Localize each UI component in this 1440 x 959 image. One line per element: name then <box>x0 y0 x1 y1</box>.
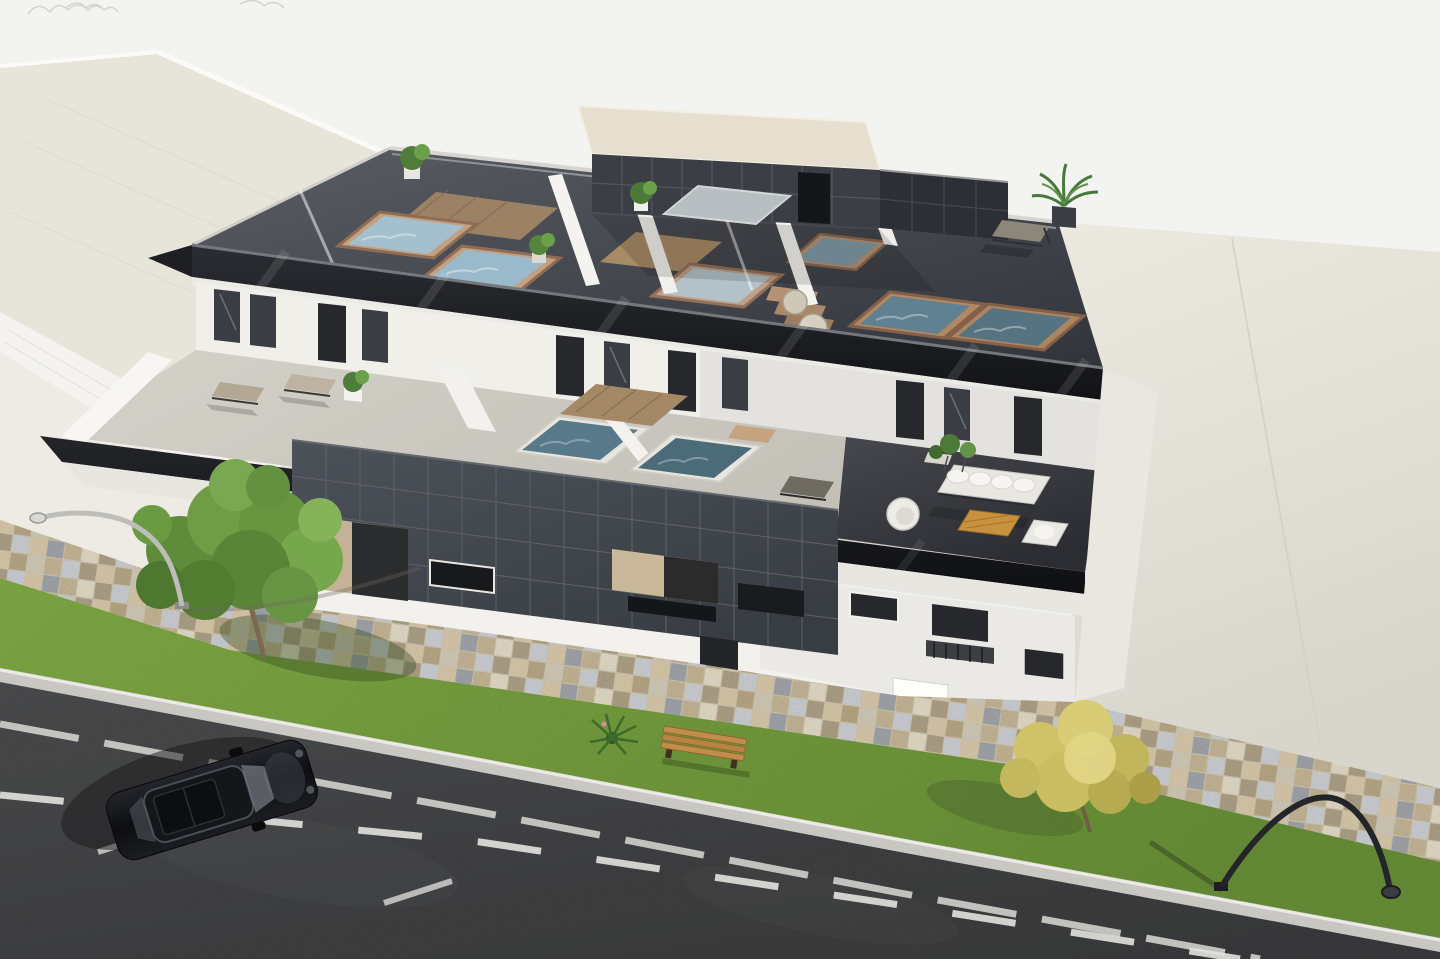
architectural-render: Aerial 3D architectural rendering of a m… <box>0 0 1440 959</box>
round-chair <box>887 498 919 530</box>
roof-pouf-1 <box>783 290 807 314</box>
bulkhead-door <box>798 172 830 224</box>
window-right-1 <box>850 592 898 622</box>
window-with-railing <box>926 604 994 664</box>
window-right-2 <box>1024 648 1064 680</box>
